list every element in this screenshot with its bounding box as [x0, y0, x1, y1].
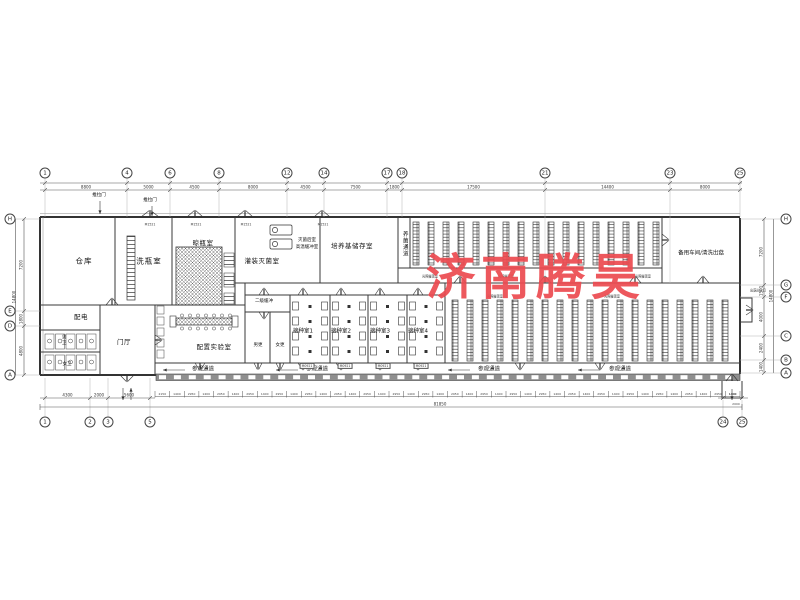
dim-top: 7500: [350, 185, 360, 190]
dim-window: 2950: [275, 392, 283, 396]
wall-rack-units: [224, 253, 234, 304]
dim-window: 1400: [670, 392, 678, 396]
grid-bubble-left: A: [5, 370, 16, 381]
fill-sterilize-room-label: 灌装灭菌室: [245, 258, 280, 265]
dim-window: 2150: [158, 392, 166, 396]
dim-window: 1400: [641, 392, 649, 396]
spare-workshop-label: 备用车间/清洗出菇: [678, 251, 724, 257]
dim-window: 2950: [188, 392, 196, 396]
dim-top: 8000: [700, 185, 710, 190]
floor-plan-canvas: 仓库 洗瓶室 晾瓶室 灌装灭菌室 灭菌后室 高温缓冲室 培养基储存室 备用车间/…: [0, 0, 800, 600]
grid-bubble-top: 4: [122, 168, 133, 179]
visitor-corridor-label: 参观通道: [478, 367, 500, 373]
dim-window: 2950: [597, 392, 605, 396]
wash-room-label: 洗瓶室: [136, 257, 162, 265]
grid-bubble-bottom: 25: [737, 417, 748, 428]
south-wall: [156, 374, 740, 381]
sliding-door-label: 推拉门: [143, 199, 157, 204]
grid-bubble-top: 6: [165, 168, 176, 179]
grid-bubble-right: G: [781, 280, 792, 291]
dim-window: 1400: [466, 392, 474, 396]
door-code-label: M0921: [376, 363, 391, 369]
dim-right: 1500: [759, 286, 764, 296]
dim-right: 2400: [759, 343, 764, 353]
women-change-label: 女更: [276, 344, 285, 349]
dim-right: 1400: [759, 361, 764, 371]
door-code-label: M1521: [241, 223, 252, 226]
dim-window: 2950: [217, 392, 225, 396]
grid-bubble-left: H: [5, 214, 16, 225]
grid-bubble-bottom: 3: [103, 417, 114, 428]
dim-bottom: 5600: [124, 393, 134, 398]
dim-right: 7200: [759, 247, 764, 257]
dim-top: 4500: [300, 185, 310, 190]
power-room-label: 配电: [74, 314, 88, 321]
visitor-corridor-label: 参观通道: [192, 367, 214, 373]
dim-top: 8000: [248, 185, 258, 190]
dim-left: 1800: [19, 313, 24, 323]
door-code-label: M1521: [191, 223, 202, 226]
autoclaves: [270, 225, 292, 249]
dim-window: 2950: [480, 392, 488, 396]
interior-walls: [40, 217, 752, 398]
dim-window: 1400: [407, 392, 415, 396]
dim-bottom: 4300: [62, 393, 72, 398]
bottle-ladder-rack: [127, 236, 135, 300]
breeding-channel-label: 养菌通道: [401, 231, 407, 257]
entry-hall-label: 门厅: [117, 339, 131, 346]
dim-window: 1400: [202, 392, 210, 396]
warehouse-label: 仓库: [76, 257, 93, 265]
high-temp-buffer-label: 高温缓冲室: [296, 246, 319, 251]
floor-plan-drawing: [0, 0, 800, 600]
dim-top: 4500: [189, 185, 199, 190]
watermark-text: 济南腾昊: [426, 253, 646, 302]
grid-bubble-top: 12: [282, 168, 293, 179]
dim-window: 1400: [378, 392, 386, 396]
dim-top: 1800: [389, 185, 399, 190]
secondary-buffer-label: 二级缓冲: [255, 300, 273, 305]
dim-window: 1400: [729, 392, 737, 396]
dim-window: 1400: [319, 392, 327, 396]
fixtures: [45, 302, 443, 370]
grid-bubble-right: F: [781, 292, 792, 303]
dim-right: 4000: [759, 311, 764, 321]
dim-top: 5000: [143, 185, 153, 190]
grid-bubble-right: C: [781, 331, 792, 342]
dim-left: 7200: [19, 260, 24, 270]
dim-window: 1400: [290, 392, 298, 396]
men-change-label: 男更: [254, 344, 263, 349]
dim-bottom-right: 2000: [732, 402, 740, 406]
dim-overall-width: 81850: [434, 402, 447, 407]
dim-bottom: 2000: [94, 393, 104, 398]
grid-bubble-left: E: [5, 306, 16, 317]
dim-window: 2950: [246, 392, 254, 396]
grid-bubble-top: 25: [735, 168, 746, 179]
lab-bench: [170, 316, 238, 327]
door-code-label: M0921: [300, 363, 315, 369]
dim-window: 2950: [685, 392, 693, 396]
dim-window: 2950: [451, 392, 459, 396]
door-code-label: M1521: [318, 223, 329, 226]
grid-bubble-right: H: [781, 214, 792, 225]
dim-top: 17500: [467, 185, 480, 190]
prep-lab-label: 配置实验室: [197, 344, 232, 351]
dim-window: 1400: [524, 392, 532, 396]
sliding-door-label: 推拉门: [92, 194, 106, 199]
dim-window: 2950: [363, 392, 371, 396]
dim-window: 2950: [392, 392, 400, 396]
dim-window: 2950: [714, 392, 722, 396]
dim-window: 1400: [261, 392, 269, 396]
grid-bubble-left: D: [5, 321, 16, 332]
dim-window: 1400: [612, 392, 620, 396]
dim-right-overall: 14800: [769, 290, 774, 303]
post-sterilize-room-label: 灭菌后室: [298, 239, 316, 244]
grid-bubble-right: B: [781, 355, 792, 366]
dim-window: 2950: [334, 392, 342, 396]
dim-window: 1400: [700, 392, 708, 396]
grid-bubble-top: 18: [397, 168, 408, 179]
grid-bubble-right: A: [781, 368, 792, 379]
medium-storage-label: 培养基储存室: [331, 243, 373, 250]
door-code-label: M0921: [414, 363, 429, 369]
inoculation-room-1-label: 接种室1: [293, 329, 313, 335]
door-code-label: M0921: [338, 363, 353, 369]
dim-window: 2950: [568, 392, 576, 396]
dim-window: 1400: [232, 392, 240, 396]
dim-window: 2950: [305, 392, 313, 396]
dim-left-overall: 14800: [12, 291, 17, 304]
dim-window: 1400: [349, 392, 357, 396]
dim-top: 8800: [81, 185, 91, 190]
dim-window: 1400: [553, 392, 561, 396]
dim-window: 2950: [626, 392, 634, 396]
grid-bubble-top: 14: [319, 168, 330, 179]
grid-bubble-bottom: 2: [85, 417, 96, 428]
visitor-corridor-label: 参观通道: [609, 367, 631, 373]
dim-window: 1400: [436, 392, 444, 396]
inoculation-room-4-label: 接种室4: [408, 329, 428, 335]
grid-bubble-top: 21: [540, 168, 551, 179]
door-code-label: M1521: [145, 223, 156, 226]
dim-window: 2950: [539, 392, 547, 396]
drying-rack-block: [176, 247, 222, 305]
grid-bubble-bottom: 5: [145, 417, 156, 428]
men-wc-label: 男卫: [61, 335, 66, 346]
grid-bubble-bottom: 1: [40, 417, 51, 428]
dim-left: 4800: [19, 345, 24, 355]
women-wc-label: 女卫: [63, 363, 72, 368]
dry-room-label: 晾瓶室: [193, 240, 214, 247]
dim-window: 1400: [583, 392, 591, 396]
dim-window: 2950: [656, 392, 664, 396]
dim-top: 14400: [601, 185, 614, 190]
grid-bubble-top: 23: [665, 168, 676, 179]
inoculation-room-2-label: 接种室2: [331, 329, 351, 335]
dim-window: 1400: [495, 392, 503, 396]
grid-bubble-top: 17: [382, 168, 393, 179]
grid-bubble-top: 8: [214, 168, 225, 179]
grid-bubble-bottom: 24: [718, 417, 729, 428]
grid-bubble-top: 1: [40, 168, 51, 179]
dim-window: 2950: [509, 392, 517, 396]
dim-window: 2950: [422, 392, 430, 396]
dim-window: 1400: [173, 392, 181, 396]
inoculation-room-3-label: 接种室3: [370, 329, 390, 335]
